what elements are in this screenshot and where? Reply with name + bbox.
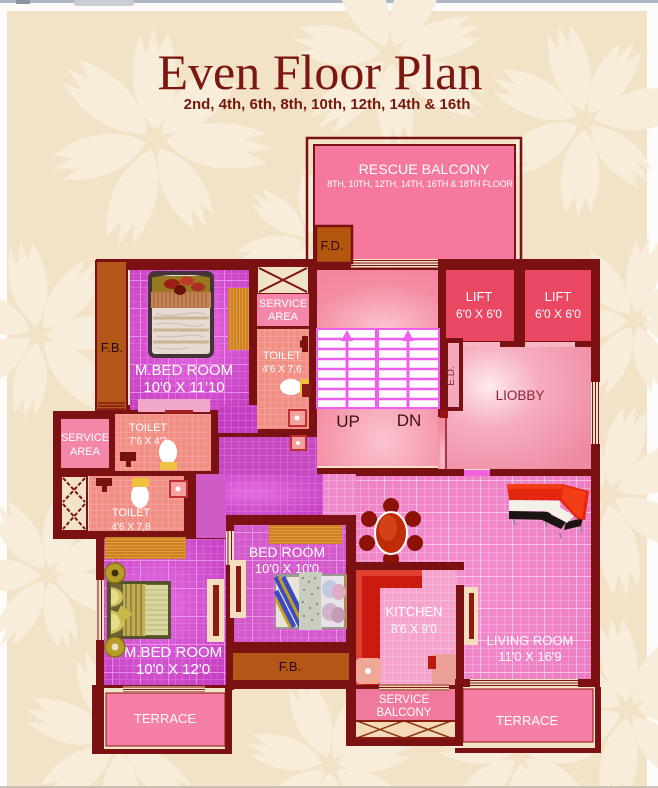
svg-text:LIFT: LIFT xyxy=(466,289,493,304)
svg-text:TERRACE: TERRACE xyxy=(496,713,558,728)
svg-text:AREA: AREA xyxy=(268,311,299,323)
svg-text:LIFT: LIFT xyxy=(545,289,572,304)
svg-text:BED ROOM: BED ROOM xyxy=(249,544,325,560)
svg-text:BALCONY: BALCONY xyxy=(377,707,432,719)
svg-text:SERVICE: SERVICE xyxy=(379,694,430,706)
svg-text:2nd, 4th, 6th, 8th, 10th, 12th: 2nd, 4th, 6th, 8th, 10th, 12th, 14th & 1… xyxy=(184,96,471,113)
svg-text:DN: DN xyxy=(397,411,422,430)
svg-text:4'6 X 7,6: 4'6 X 7,6 xyxy=(262,364,302,375)
svg-text:E.D.: E.D. xyxy=(446,366,457,385)
svg-text:10'0 X 12'0: 10'0 X 12'0 xyxy=(136,661,210,678)
svg-text:M.BED ROOM: M.BED ROOM xyxy=(124,644,222,661)
svg-text:F.D.: F.D. xyxy=(320,238,343,253)
svg-text:TOILET: TOILET xyxy=(263,350,302,362)
svg-text:4'6 X 7,8: 4'6 X 7,8 xyxy=(111,522,151,533)
svg-text:10'0 X 11'10: 10'0 X 11'10 xyxy=(143,379,224,396)
svg-text:TOILET: TOILET xyxy=(129,422,168,434)
svg-text:TOILET: TOILET xyxy=(112,507,151,519)
svg-text:LIOBBY: LIOBBY xyxy=(496,388,545,403)
svg-text:LIVING ROOM: LIVING ROOM xyxy=(487,633,574,648)
svg-text:F.B.: F.B. xyxy=(279,659,301,674)
svg-text:UP: UP xyxy=(336,412,360,431)
svg-text:RESCUE BALCONY: RESCUE BALCONY xyxy=(359,162,490,178)
svg-text:6'0 X 6'0: 6'0 X 6'0 xyxy=(456,307,502,321)
svg-text:F.B.: F.B. xyxy=(101,340,123,355)
svg-text:AREA: AREA xyxy=(70,446,101,458)
svg-text:8TH, 10TH, 12TH, 14TH, 16TH &: 8TH, 10TH, 12TH, 14TH, 16TH & 18TH FLOOR xyxy=(327,179,513,189)
svg-text:SERVICE: SERVICE xyxy=(61,432,109,444)
svg-text:KITCHEN: KITCHEN xyxy=(385,604,442,619)
svg-text:SERVICE: SERVICE xyxy=(259,298,307,310)
svg-text:M.BED ROOM: M.BED ROOM xyxy=(135,362,233,379)
svg-text:Even Floor Plan: Even Floor Plan xyxy=(158,44,483,100)
svg-text:6'0 X 6'0: 6'0 X 6'0 xyxy=(535,307,581,321)
svg-text:8'6 X 9'0: 8'6 X 9'0 xyxy=(391,622,437,636)
svg-text:11'0 X 16'9: 11'0 X 16'9 xyxy=(498,649,561,664)
svg-text:TERRACE: TERRACE xyxy=(134,711,196,726)
